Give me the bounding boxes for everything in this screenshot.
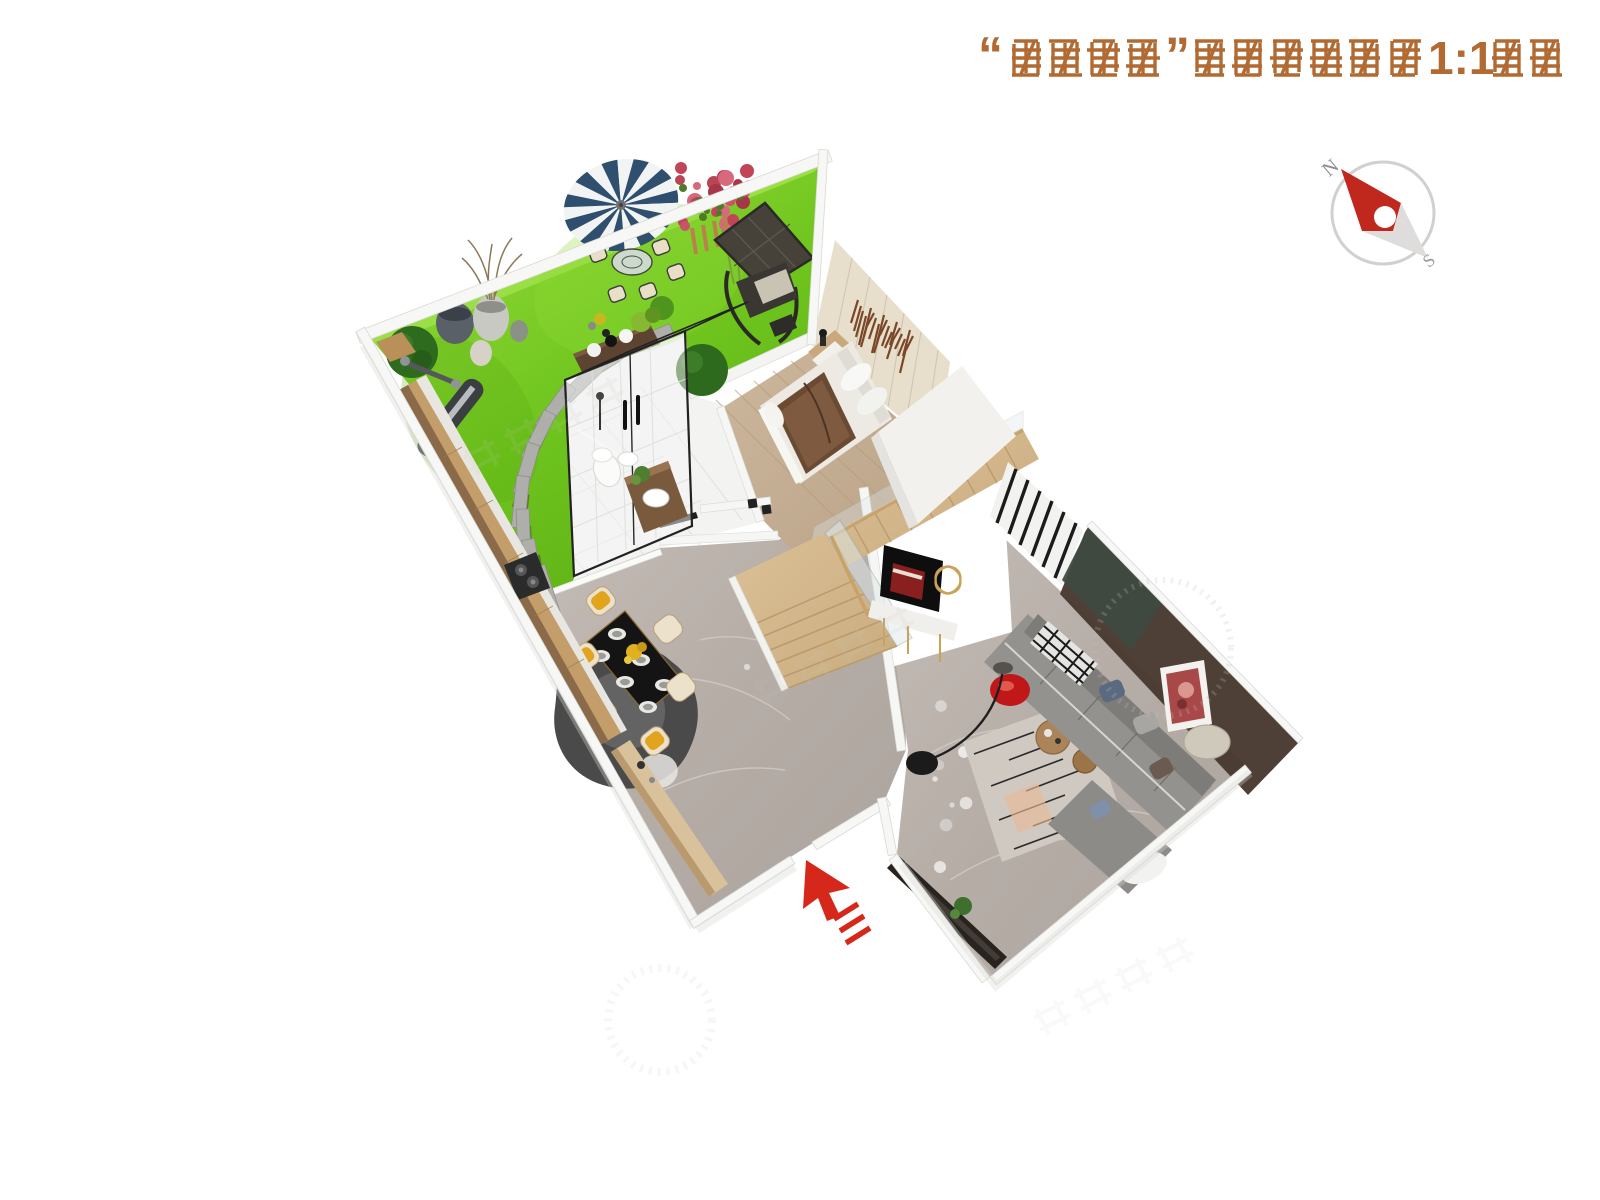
svg-text:1:1: 1:1 [1428,32,1494,84]
svg-text:“: “ [978,27,1003,83]
svg-text:”: ” [1165,27,1190,83]
